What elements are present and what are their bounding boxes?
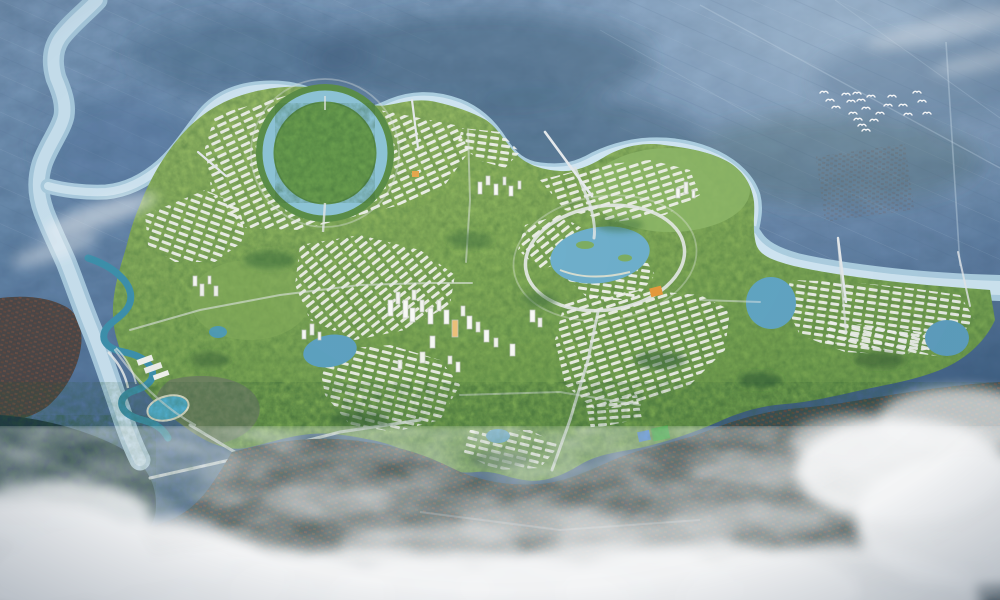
vignette-overlay [0,0,1000,600]
aerial-masterplan-render [0,0,1000,600]
aerial-render-stage [0,0,1000,600]
